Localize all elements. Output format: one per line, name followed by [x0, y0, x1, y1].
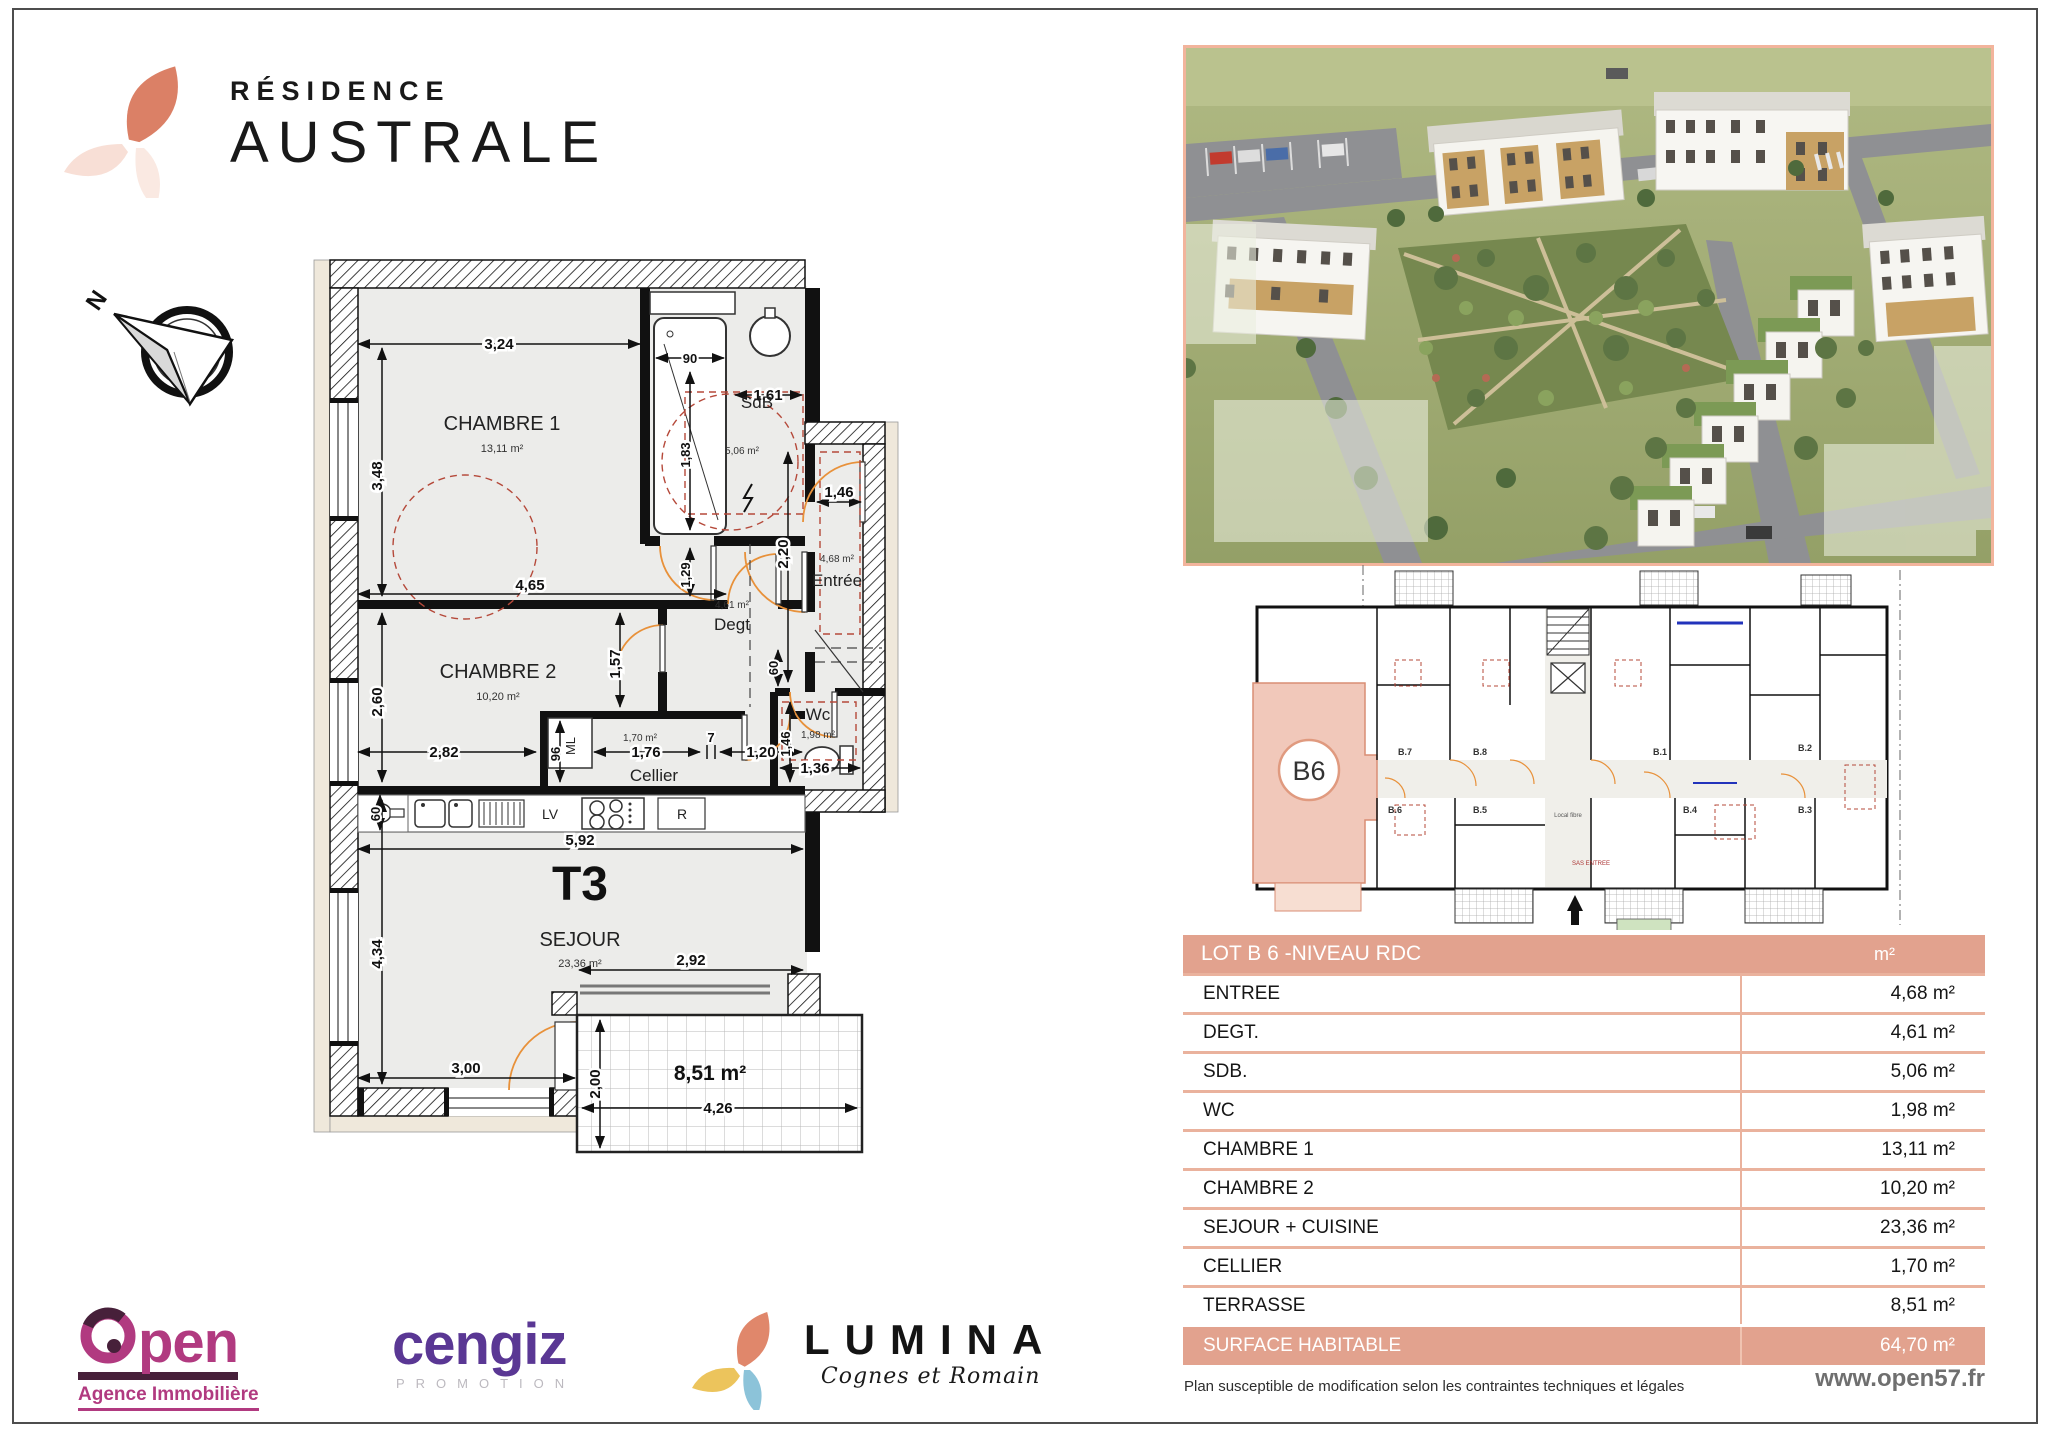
corridor: [1377, 760, 1887, 798]
cengiz-subtitle: PROMOTION: [392, 1376, 575, 1391]
svg-text:7: 7: [707, 730, 714, 745]
svg-text:CHAMBRE 1: CHAMBRE 1: [444, 413, 561, 435]
brand-petal-icon: [62, 48, 212, 198]
building-level-plan: B6: [1245, 565, 1915, 930]
svg-text:10,20 m²: 10,20 m²: [476, 691, 520, 703]
svg-text:23,36 m²: 23,36 m²: [558, 958, 602, 970]
dishwasher-label: LV: [542, 806, 559, 822]
svg-text:Local fibre: Local fibre: [1554, 813, 1582, 819]
table-unit-header: m²: [1874, 944, 1895, 965]
table-row: SDB.5,06 m²: [1183, 1051, 1985, 1090]
svg-text:96: 96: [548, 747, 563, 761]
open-o-icon: [78, 1304, 138, 1366]
table-row: TERRASSE8,51 m²: [1183, 1285, 1985, 1324]
terrace: 8,51 m²: [577, 1015, 862, 1152]
lumina-name: LUMINA: [804, 1316, 1057, 1364]
disclaimer-text: Plan susceptible de modification selon l…: [1184, 1378, 1684, 1395]
svg-text:4,65: 4,65: [515, 577, 544, 594]
svg-text:B.6: B.6: [1388, 805, 1402, 815]
svg-text:2,20: 2,20: [775, 539, 792, 568]
svg-text:SAS ENTREE: SAS ENTREE: [1572, 861, 1610, 867]
lumina-subtitle: Cognes et Romain: [804, 1364, 1057, 1389]
apartment-floorplan: ML LV R: [230, 252, 920, 1192]
website-text: www.open57.fr: [1760, 1365, 1985, 1393]
svg-text:1,57: 1,57: [607, 649, 624, 678]
svg-text:B.8: B.8: [1473, 747, 1487, 757]
svg-text:60: 60: [368, 807, 383, 821]
svg-text:4,26: 4,26: [703, 1100, 732, 1117]
terrace-area: 8,51 m²: [674, 1062, 746, 1085]
svg-text:1,98 m²: 1,98 m²: [801, 730, 836, 741]
upper-balconies: [1395, 571, 1851, 605]
svg-text:Degt: Degt: [714, 615, 750, 634]
svg-text:ML: ML: [563, 737, 578, 755]
entrance-arrow-icon: [1567, 895, 1583, 925]
unit-b6-highlight: B6: [1253, 683, 1377, 911]
open-subtitle: Agence Immobilière: [78, 1384, 259, 1411]
kitchen-counter: LV R: [358, 795, 805, 832]
cengiz-logo: cengiz PROMOTION: [392, 1316, 575, 1391]
cengiz-name: cengiz: [392, 1316, 575, 1374]
svg-text:5,06 m²: 5,06 m²: [725, 446, 760, 457]
svg-text:60: 60: [766, 661, 781, 675]
elevator: [1551, 663, 1585, 693]
svg-text:Entrée: Entrée: [812, 571, 862, 590]
svg-text:1,20: 1,20: [746, 744, 775, 761]
table-header: LOT B 6 -NIVEAU RDC m²: [1183, 935, 1985, 973]
table-row: CELLIER1,70 m²: [1183, 1246, 1985, 1285]
svg-text:1,36: 1,36: [800, 760, 829, 777]
type-label: T3: [552, 858, 608, 911]
svg-text:CHAMBRE 2: CHAMBRE 2: [440, 661, 557, 683]
svg-text:2,82: 2,82: [429, 744, 458, 761]
staircase: [1547, 609, 1589, 655]
svg-text:B.1: B.1: [1653, 747, 1667, 757]
table-row: CHAMBRE 210,20 m²: [1183, 1168, 1985, 1207]
brand-line1: RÉSIDENCE: [230, 76, 608, 107]
svg-text:1,83: 1,83: [678, 442, 693, 467]
svg-text:B.3: B.3: [1798, 805, 1812, 815]
aerial-render: [1183, 45, 1994, 566]
svg-text:SEJOUR: SEJOUR: [539, 929, 620, 951]
table-row: SEJOUR + CUISINE23,36 m²: [1183, 1207, 1985, 1246]
brand-line2: AUSTRALE: [230, 109, 608, 176]
svg-text:3,00: 3,00: [451, 1060, 480, 1077]
open-name: pen: [138, 1320, 238, 1366]
svg-text:4,68 m²: 4,68 m²: [820, 554, 855, 565]
svg-text:1,46: 1,46: [824, 484, 853, 501]
svg-text:13,11 m²: 13,11 m²: [481, 443, 524, 455]
svg-text:4,61 m²: 4,61 m²: [715, 600, 750, 611]
svg-text:B.5: B.5: [1473, 805, 1487, 815]
table-row: DEGT.4,61 m²: [1183, 1012, 1985, 1051]
table-total-row: SURFACE HABITABLE64,70 m²: [1183, 1327, 1985, 1365]
floorplan-sheet: RÉSIDENCE AUSTRALE N: [0, 0, 2048, 1435]
svg-text:B.4: B.4: [1683, 805, 1697, 815]
svg-text:90: 90: [683, 351, 697, 366]
svg-text:1,29: 1,29: [678, 562, 693, 587]
svg-text:3,24: 3,24: [484, 336, 514, 353]
compass-n-label: N: [82, 286, 113, 316]
fridge-label: R: [677, 806, 687, 822]
lower-terraces: [1455, 889, 1823, 930]
lumina-logo: LUMINA Cognes et Romain: [690, 1300, 1057, 1410]
unit-b6-label: B6: [1292, 756, 1325, 786]
table-row: ENTREE4,68 m²: [1183, 973, 1985, 1012]
table-row: WC1,98 m²: [1183, 1090, 1985, 1129]
svg-text:Cellier: Cellier: [630, 766, 679, 785]
lumina-petal-icon: [690, 1300, 790, 1410]
svg-text:5,92: 5,92: [565, 832, 594, 849]
open-logo: pen Agence Immobilière: [78, 1304, 259, 1411]
svg-text:1,46: 1,46: [778, 731, 793, 756]
svg-text:B.7: B.7: [1398, 747, 1412, 757]
areas-table: LOT B 6 -NIVEAU RDC m² ENTREE4,68 m² DEG…: [1183, 935, 1985, 1365]
svg-text:Wc: Wc: [806, 705, 831, 724]
svg-text:4,34: 4,34: [369, 939, 386, 969]
svg-text:2,92: 2,92: [676, 952, 705, 969]
svg-text:SdB: SdB: [741, 393, 773, 412]
table-title: LOT B 6 -NIVEAU RDC: [1201, 942, 1421, 966]
svg-text:1,70 m²: 1,70 m²: [623, 733, 658, 744]
shower: [650, 292, 735, 534]
table-row: CHAMBRE 113,11 m²: [1183, 1129, 1985, 1168]
svg-text:2,60: 2,60: [369, 687, 386, 716]
brand-logo: RÉSIDENCE AUSTRALE: [62, 48, 622, 198]
svg-text:B.2: B.2: [1798, 743, 1812, 753]
svg-text:3,48: 3,48: [369, 461, 386, 490]
svg-text:1,76: 1,76: [631, 744, 660, 761]
svg-text:2,00: 2,00: [587, 1069, 604, 1098]
